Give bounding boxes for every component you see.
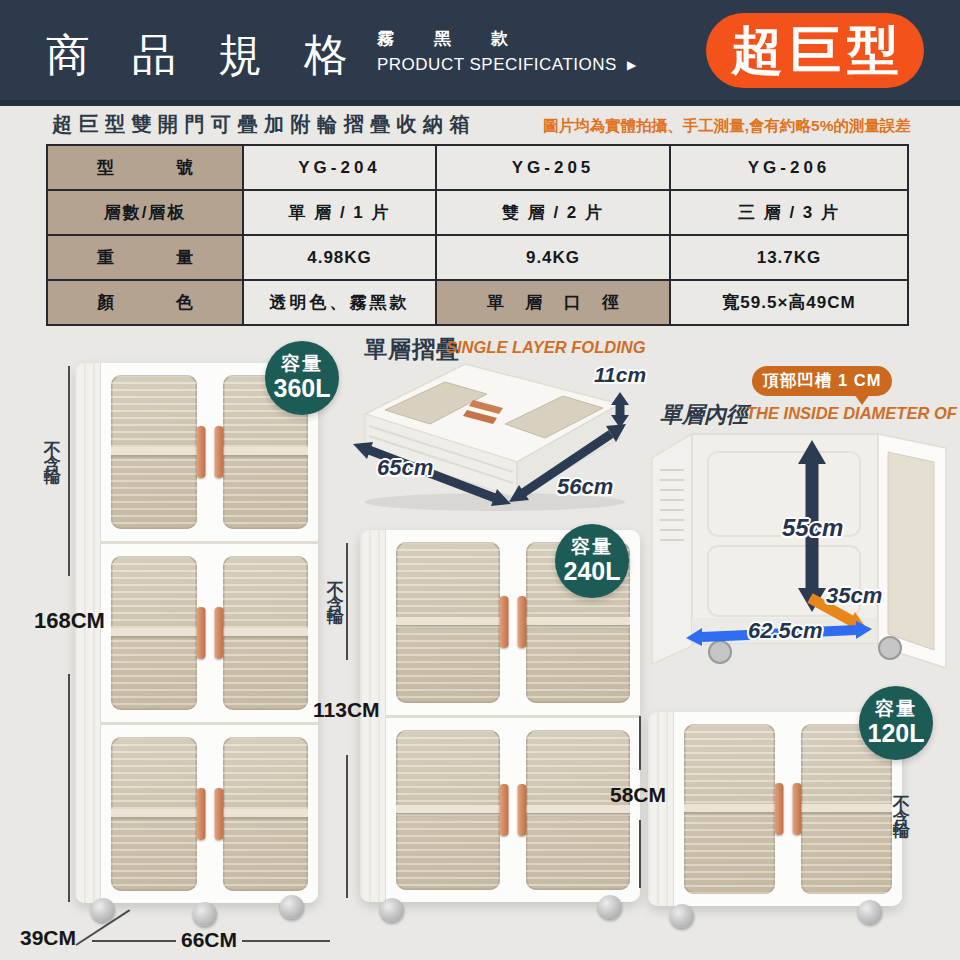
width-dim-line xyxy=(242,940,330,942)
door-window xyxy=(223,556,309,710)
caster-wheel xyxy=(598,895,622,919)
folded-height-label: 11cm xyxy=(594,363,646,387)
height-dim-label: 113CM xyxy=(313,698,380,722)
product-name: 超巨型雙開門可疊加附輪摺疊收納箱 xyxy=(52,111,476,138)
row-label: 重量 xyxy=(47,235,243,280)
width-dim-line xyxy=(92,940,176,942)
table-cell: 三 層 / 3 片 xyxy=(670,190,908,235)
height-dim-line xyxy=(639,716,641,770)
capacity-badge-120l: 容量 120L xyxy=(859,686,933,760)
no-wheels-note: 不含輪 xyxy=(324,568,347,607)
caster-wheel xyxy=(670,904,694,928)
table-cell: 13.7KG xyxy=(670,235,908,280)
table-cell: YG-206 xyxy=(670,145,908,190)
height-dim-label: 168CM xyxy=(34,608,105,634)
inside-depth-label: 35cm xyxy=(826,583,882,609)
cabinet-tier xyxy=(386,718,640,903)
row-label: 層數/層板 xyxy=(47,190,243,235)
capacity-badge-360l: 容量 360L xyxy=(265,341,339,415)
door-window xyxy=(526,730,630,891)
row-label: 顏色 xyxy=(47,280,243,325)
door-handles xyxy=(775,783,802,835)
door-window xyxy=(396,542,500,703)
caster-wheel xyxy=(380,898,404,922)
subtitle-en: PRODUCT SPECIFICATIONS▶ xyxy=(377,55,637,75)
height-dim-line xyxy=(68,366,70,576)
door-window xyxy=(684,724,775,894)
door-window xyxy=(396,730,500,891)
width-dim-label: 66CM xyxy=(181,928,237,952)
cabinet-tier xyxy=(101,544,318,725)
height-dim-line xyxy=(639,820,641,888)
capacity-badge-240l: 容量 240L xyxy=(555,524,629,598)
table-row: 重量 4.98KG 9.4KG 13.7KG xyxy=(47,235,908,280)
depth-dim-label: 39CM xyxy=(20,926,76,950)
inside-width-label: 62.5cm xyxy=(748,618,823,644)
no-wheels-note: 不含輪 xyxy=(41,428,64,467)
caster-wheel xyxy=(193,902,217,926)
variant-label: 霧黑款 xyxy=(377,27,548,50)
caster-wheel xyxy=(91,898,115,922)
door-handles xyxy=(500,596,527,648)
product-spec-sheet: 商品規格 霧黑款 PRODUCT SPECIFICATIONS▶ 超巨型 超巨型… xyxy=(0,0,960,960)
door-handles xyxy=(196,607,223,659)
inside-height-label: 55cm xyxy=(782,514,843,542)
cabinet-360l-illustration xyxy=(75,363,318,903)
table-cell: 單 層 / 1 片 xyxy=(243,190,436,235)
size-badge: 超巨型 xyxy=(706,13,924,88)
table-cell-label: 單層口徑 xyxy=(436,280,670,325)
caster-wheel xyxy=(280,895,304,919)
header-divider xyxy=(0,100,960,106)
door-handles xyxy=(500,784,527,836)
door-handles xyxy=(196,426,223,478)
page-title: 商品規格 xyxy=(46,26,390,85)
no-wheels-note: 不含輪 xyxy=(890,782,913,821)
door-window xyxy=(111,737,197,891)
height-dim-line xyxy=(68,674,70,902)
door-window xyxy=(111,375,197,529)
top-groove-badge: 頂部凹槽 1 CM xyxy=(752,366,892,396)
table-cell: 透明色、霧黑款 xyxy=(243,280,436,325)
table-cell: 9.4KG xyxy=(436,235,670,280)
height-dim-line xyxy=(346,755,348,898)
table-row: 層數/層板 單 層 / 1 片 雙 層 / 2 片 三 層 / 3 片 xyxy=(47,190,908,235)
height-dim-label: 58CM xyxy=(610,783,666,807)
header-bar: 商品規格 霧黑款 PRODUCT SPECIFICATIONS▶ 超巨型 xyxy=(0,0,960,100)
measurement-disclaimer: 圖片均為實體拍攝、手工測量,會有約略5%的測量誤差 xyxy=(543,116,911,137)
table-cell: YG-204 xyxy=(243,145,436,190)
cabinet-side-panel xyxy=(648,712,674,906)
row-label: 型號 xyxy=(47,145,243,190)
folded-depth-label: 56cm xyxy=(557,474,613,500)
folded-width-label: 65cm xyxy=(377,455,433,481)
table-row: 型號 YG-204 YG-205 YG-206 xyxy=(47,145,908,190)
cabinet-tier xyxy=(101,725,318,903)
door-window xyxy=(111,556,197,710)
door-handles xyxy=(196,788,223,840)
table-cell: 寬59.5×高49CM xyxy=(670,280,908,325)
table-cell: YG-205 xyxy=(436,145,670,190)
table-cell: 4.98KG xyxy=(243,235,436,280)
door-window xyxy=(223,737,309,891)
caster-wheel xyxy=(858,900,882,924)
play-arrow-icon: ▶ xyxy=(627,58,637,72)
spec-table: 型號 YG-204 YG-205 YG-206 層數/層板 單 層 / 1 片 … xyxy=(46,144,909,326)
table-row: 顏色 透明色、霧黑款 單層口徑 寬59.5×高49CM xyxy=(47,280,908,325)
table-cell: 雙 層 / 2 片 xyxy=(436,190,670,235)
